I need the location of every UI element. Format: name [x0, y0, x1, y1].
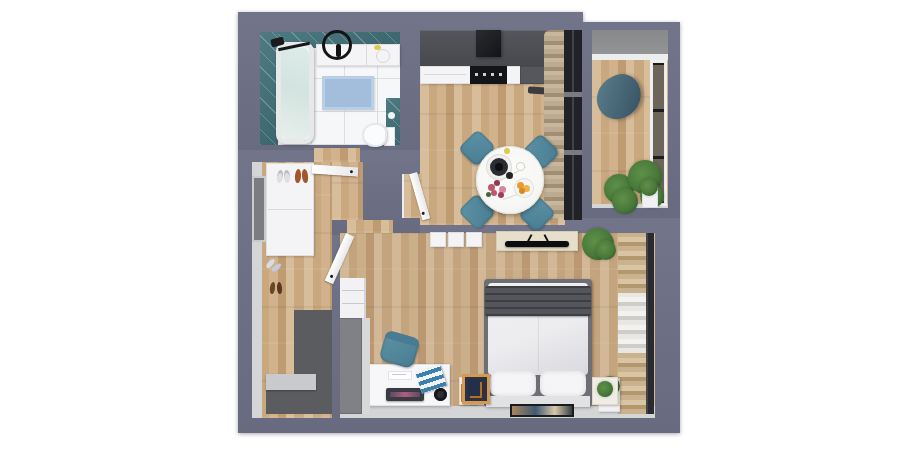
living-door-handle — [330, 274, 334, 278]
entry-door-recess — [252, 176, 266, 242]
wardrobe-shelf-top — [618, 233, 646, 293]
toilet-paper — [388, 112, 395, 119]
storage-box-1 — [430, 232, 446, 247]
bathtub — [276, 42, 314, 144]
hall-door-handle — [350, 170, 353, 173]
kitchen-window-wall — [564, 30, 582, 220]
living-doorway-floor — [347, 220, 393, 233]
pillow-right — [540, 371, 586, 396]
sandal-right — [284, 170, 291, 183]
hall-wardrobe — [266, 163, 314, 256]
desk-paper — [388, 371, 412, 380]
dining-table — [476, 146, 544, 214]
bed-throw-blanket — [485, 286, 591, 316]
window-frame-break-2 — [564, 150, 582, 155]
laptop-screen — [390, 392, 420, 397]
bath-mat — [322, 76, 374, 110]
tall-wardrobe-side — [362, 318, 370, 414]
shoe-orange-left — [295, 169, 302, 183]
kitchen-curtain — [544, 30, 564, 218]
wardrobe-rail — [646, 233, 654, 414]
fruit-plate — [514, 178, 534, 198]
flower-bouquet — [486, 178, 510, 200]
range-hood — [476, 30, 501, 57]
entry-mat-row — [266, 388, 332, 414]
floor-plan-canvas — [0, 0, 900, 450]
shoe-orange-right — [301, 169, 308, 184]
kitchen-door-handle — [421, 212, 425, 216]
toilet-bowl — [362, 123, 387, 147]
cooktop-knobs — [475, 73, 502, 76]
storage-box-3 — [466, 232, 482, 247]
tv — [505, 241, 569, 247]
plant-3 — [612, 188, 638, 214]
plant-living-top-2 — [596, 240, 616, 260]
entry-step — [266, 374, 316, 390]
wardrobe-shelf-bottom — [618, 353, 646, 414]
pillow-left — [490, 371, 536, 396]
wall-art — [510, 404, 574, 417]
window-frame-break-1 — [564, 92, 582, 97]
bathroom-doorway-floor — [314, 148, 360, 162]
soap-dish — [374, 45, 381, 50]
sink-faucet — [336, 44, 341, 57]
washer-door — [376, 49, 390, 63]
window-frame-highlight — [572, 30, 574, 220]
laptop — [386, 388, 424, 401]
vanity-divider — [366, 44, 367, 66]
dark-bowl-center — [495, 163, 503, 171]
lemon — [504, 148, 510, 154]
sandal-left — [276, 170, 284, 184]
storage-box-2 — [448, 232, 464, 247]
wardrobe-shelf-middle — [618, 293, 646, 353]
tall-wardrobe-gray — [339, 318, 362, 414]
desk-speaker — [434, 388, 447, 401]
wardrobe-divider — [268, 209, 312, 210]
nightstand-plant — [597, 381, 613, 397]
cup — [516, 162, 525, 171]
cooktop — [470, 66, 507, 84]
bathtub-water — [281, 48, 309, 139]
balcony-planter-plant — [640, 178, 658, 196]
drawer-line — [424, 74, 466, 75]
shelving-unit — [340, 278, 366, 318]
leaning-frame — [462, 374, 490, 404]
balcony-glass-panel — [592, 30, 668, 54]
